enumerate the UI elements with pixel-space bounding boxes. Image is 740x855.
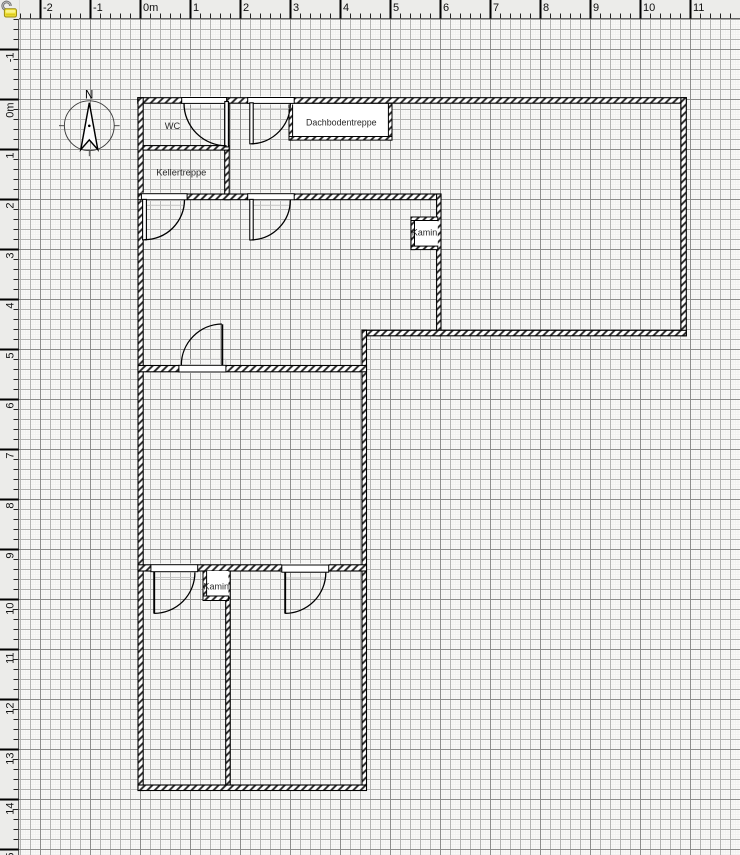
svg-text:3: 3 <box>5 253 17 259</box>
svg-text:8: 8 <box>543 2 549 14</box>
svg-text:N: N <box>85 89 93 101</box>
svg-text:-1: -1 <box>5 53 17 63</box>
svg-text:10: 10 <box>643 2 655 14</box>
svg-text:-2: -2 <box>43 2 53 14</box>
svg-text:Dachbodentreppe: Dachbodentreppe <box>306 117 377 127</box>
svg-text:WC: WC <box>165 121 181 131</box>
svg-text:5: 5 <box>393 2 399 14</box>
svg-text:12: 12 <box>5 703 17 715</box>
svg-text:2: 2 <box>5 203 17 209</box>
svg-text:0m: 0m <box>143 2 158 14</box>
svg-text:-1: -1 <box>93 2 103 14</box>
svg-text:5: 5 <box>5 353 17 359</box>
svg-text:6: 6 <box>443 2 449 14</box>
svg-text:14: 14 <box>5 803 17 815</box>
svg-text:9: 9 <box>593 2 599 14</box>
svg-text:7: 7 <box>493 2 499 14</box>
svg-text:11: 11 <box>5 653 17 664</box>
svg-text:2: 2 <box>243 2 249 14</box>
svg-text:0m: 0m <box>5 103 17 118</box>
svg-text:7: 7 <box>5 453 17 459</box>
svg-text:1: 1 <box>5 153 17 159</box>
svg-text:13: 13 <box>5 753 17 765</box>
svg-text:8: 8 <box>5 503 17 509</box>
svg-text:10: 10 <box>5 603 17 615</box>
svg-text:11: 11 <box>693 2 704 14</box>
svg-text:9: 9 <box>5 553 17 559</box>
svg-text:4: 4 <box>343 2 349 14</box>
svg-text:4: 4 <box>5 303 17 309</box>
svg-text:Kamin: Kamin <box>412 228 438 238</box>
svg-text:3: 3 <box>293 2 299 14</box>
svg-text:6: 6 <box>5 403 17 409</box>
svg-text:Kamin: Kamin <box>204 582 230 592</box>
svg-text:1: 1 <box>193 2 199 14</box>
svg-text:Kellertreppe: Kellertreppe <box>156 168 206 178</box>
